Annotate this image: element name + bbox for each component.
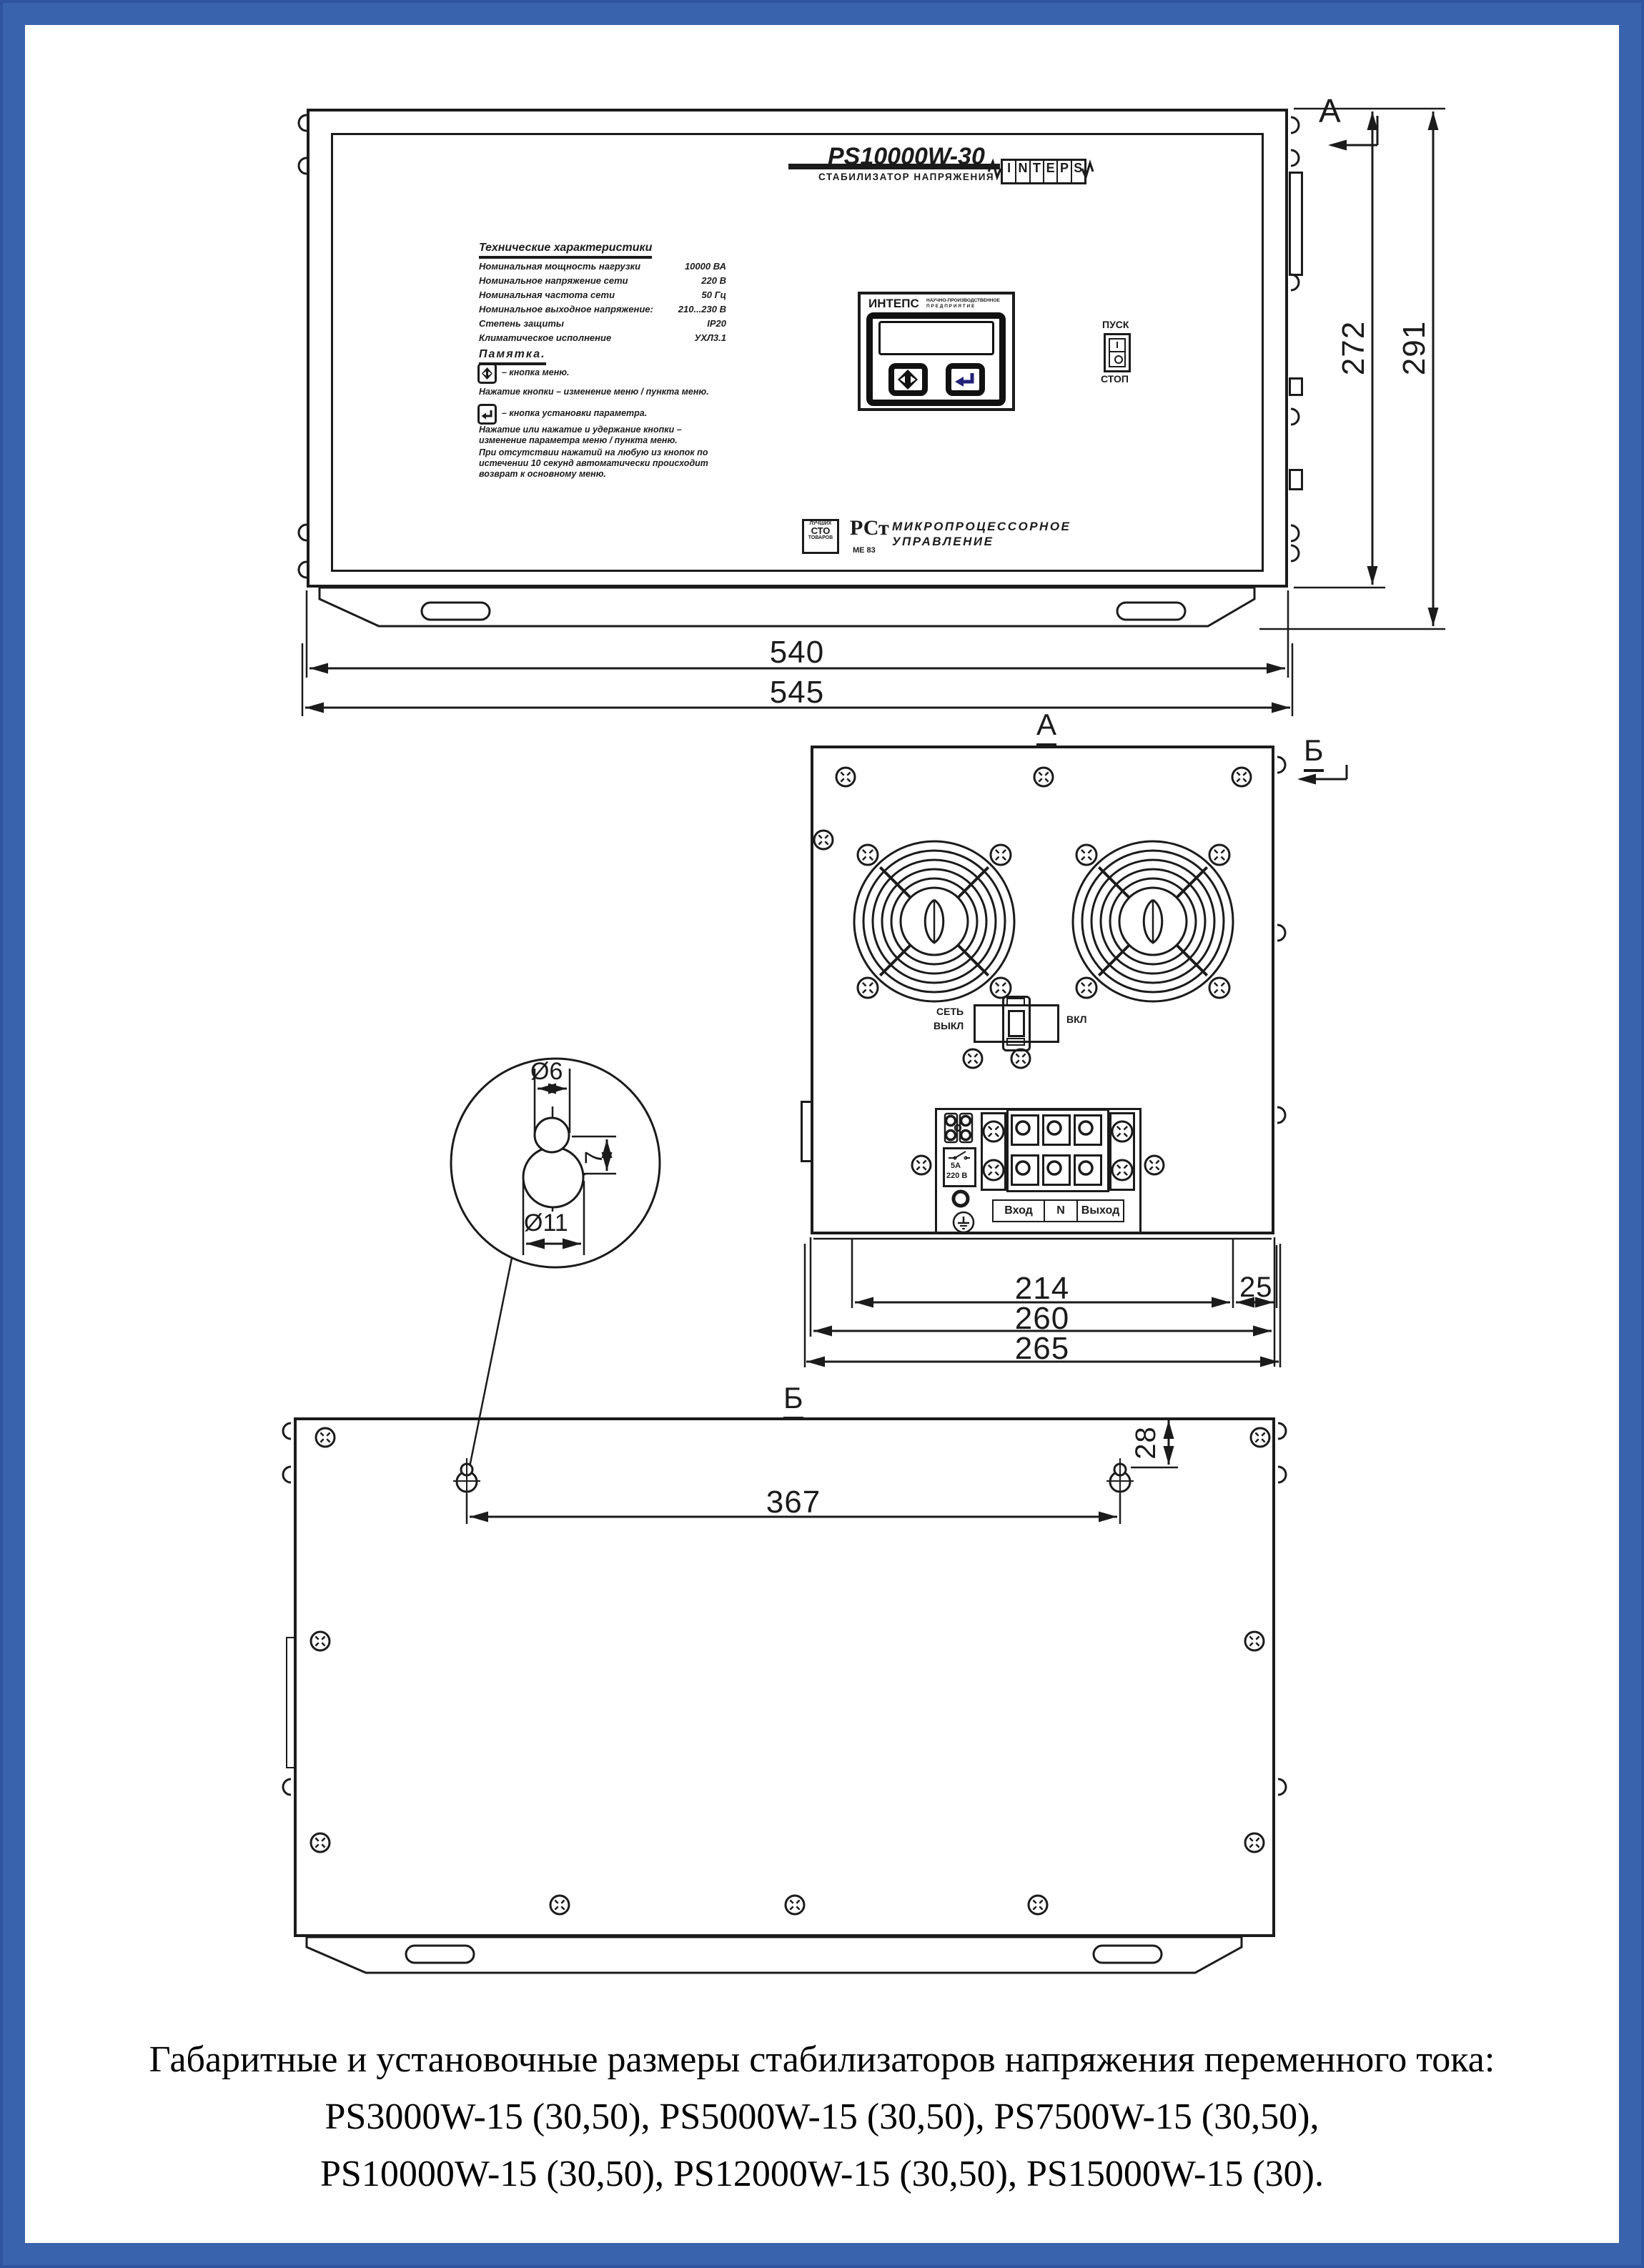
type-label: СТАБИЛИЗАТОР НАПРЯЖЕНИЯ [818, 172, 994, 182]
detail-dia-top: Ø6 [530, 1058, 563, 1086]
display-brand-sub2: П Р Е Д П Р И Я Т И Е [926, 304, 974, 309]
terminal[interactable] [1074, 1154, 1102, 1186]
rst-cert-logo: РСт [850, 516, 889, 540]
logo-letter: T [1031, 161, 1044, 182]
menu-button-icon [477, 363, 497, 384]
spec-row: Климатическое исполнениеУХЛ3.1 [479, 332, 726, 343]
dim-545: 545 [770, 675, 824, 710]
terminal[interactable] [1074, 1114, 1102, 1146]
dim-540: 540 [770, 635, 824, 670]
terminal-flange-left [981, 1112, 1006, 1191]
mains-label-on: ВКЛ [1066, 1014, 1086, 1025]
display-brand-sub1: НАУЧНО-ПРОИЗВОДСТВЕННОЕ [926, 298, 1000, 303]
spec-row: Степень защитыIP20 [479, 318, 726, 329]
terminal-flange-right [1109, 1112, 1135, 1191]
spec-row: Номинальное выходное напряжение:210...23… [479, 304, 726, 315]
cert-code: МЕ 83 [853, 546, 876, 555]
logo-letter: S [1072, 161, 1084, 182]
terminal-label-in: Вход [994, 1201, 1045, 1221]
memo-note1: Нажатие кнопки – изменение меню / пункта… [479, 387, 709, 397]
memo-item2: – кнопка установки параметра. [502, 408, 647, 419]
dim-291: 291 [1397, 321, 1432, 375]
mains-switch-rocker [1008, 1010, 1025, 1037]
spec-row: Номинальное напряжение сети220 В [479, 275, 726, 286]
specs-title: Технические характеристики [479, 242, 652, 259]
quality-badge: ЛУЧШИХ СТО ТОВАРОВ [802, 519, 839, 554]
dim-28: 28 [1130, 1426, 1162, 1460]
view-b-label: Б [783, 1381, 803, 1420]
caption-line3: PS10000W-15 (30,50), PS12000W-15 (30,50)… [0, 2153, 1644, 2195]
start-label: ПУСК [1102, 319, 1129, 330]
off-mark [1114, 355, 1123, 364]
terminal[interactable] [1011, 1154, 1039, 1186]
logo-letter: I [1003, 161, 1016, 182]
feature-line1: МИКРОПРОЦЕССОРНОЕ [892, 520, 1071, 534]
section-arrow-b-label: Б [1304, 733, 1324, 772]
menu-button[interactable] [888, 363, 928, 396]
spec-row: Номинальная частота сети50 Гц [479, 289, 726, 300]
view-a-label: А [1036, 708, 1056, 746]
terminal[interactable] [1042, 1154, 1071, 1186]
detail-dia-bottom: Ø11 [524, 1209, 568, 1237]
terminal-label-n: N [1045, 1201, 1078, 1221]
logo-letter: E [1044, 161, 1058, 182]
title-rule [788, 164, 1000, 169]
display-brand: ИНТЕПС [868, 297, 919, 311]
on-mark [1116, 342, 1118, 348]
caption-line2: PS3000W-15 (30,50), PS5000W-15 (30,50), … [0, 2096, 1644, 2138]
hinge-strip-bottom [286, 1637, 295, 1768]
terminal[interactable] [1011, 1114, 1039, 1146]
section-arrow-a-label: А [1319, 91, 1341, 130]
dim-25: 25 [1239, 1272, 1273, 1304]
mains-label-1: СЕТЬ [936, 1006, 964, 1017]
start-stop-switch[interactable] [1104, 333, 1131, 372]
dim-265: 265 [1015, 1331, 1069, 1367]
stop-label: СТОП [1101, 373, 1129, 385]
hinge-strip [1289, 172, 1303, 276]
terminal-label-out: Выход [1078, 1201, 1123, 1221]
rocker-divider [1110, 351, 1124, 352]
switch-tab [1006, 1038, 1025, 1046]
relay-rating-box: 5А 220 В [943, 1147, 976, 1187]
dim-272: 272 [1336, 321, 1372, 375]
caption-line1: Габаритные и установочные размеры стабил… [0, 2039, 1644, 2081]
feature-line2: УПРАВЛЕНИЕ [892, 535, 994, 549]
terminal-labels: Вход N Выход [992, 1199, 1124, 1222]
memo-note3: При отсутствии нажатий на любую из кнопо… [479, 447, 731, 480]
technical-drawing-page: PS10000W-30 СТАБИЛИЗАТОР НАПРЯЖЕНИЯ I N … [0, 0, 1644, 2268]
hinge-block [1289, 377, 1303, 396]
enter-button[interactable] [946, 363, 985, 396]
dim-367: 367 [766, 1485, 821, 1520]
switch-tab [1006, 998, 1025, 1006]
hinge-block [1289, 469, 1303, 490]
memo-item1: – кнопка меню. [502, 367, 570, 378]
logo-letter: P [1058, 161, 1071, 182]
mains-label-off: ВЫКЛ [934, 1020, 964, 1031]
terminal[interactable] [1042, 1114, 1071, 1146]
lcd-screen [878, 321, 994, 355]
spec-row: Номинальная мощность нагрузки10000 ВА [479, 261, 726, 272]
logo-letter: N [1016, 161, 1030, 182]
inteps-logo: I N T E P S [1001, 159, 1086, 184]
detail-depth: 7 [580, 1151, 608, 1164]
memo-note2: Нажатие или нажатие и удержание кнопки –… [479, 425, 731, 446]
enter-button-icon [477, 404, 497, 425]
hinge-tab [801, 1101, 813, 1162]
